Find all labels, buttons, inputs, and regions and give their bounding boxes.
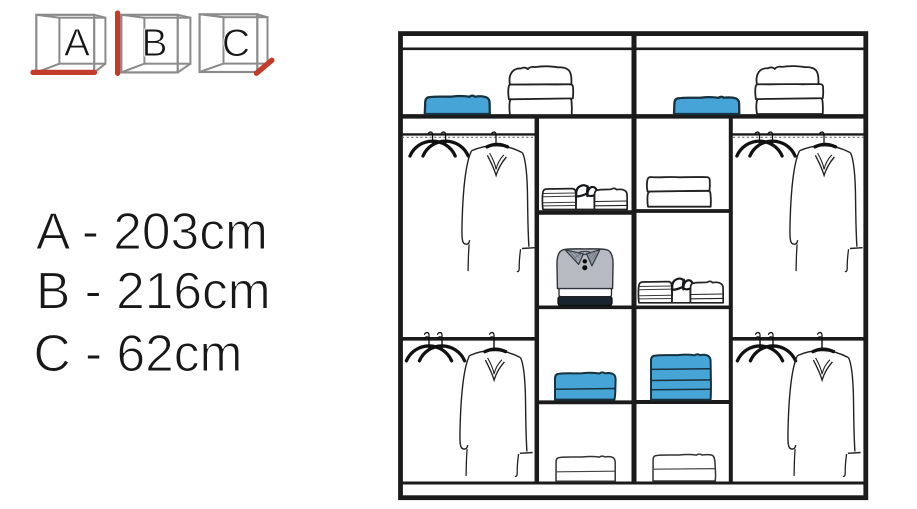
svg-text:A: A [64, 22, 90, 65]
svg-text:C - 62cm: C - 62cm [34, 324, 243, 382]
svg-text:B - 216cm: B - 216cm [36, 262, 271, 320]
svg-text:A - 203cm: A - 203cm [36, 202, 268, 260]
svg-text:B: B [141, 22, 167, 65]
svg-text:C: C [222, 22, 250, 65]
